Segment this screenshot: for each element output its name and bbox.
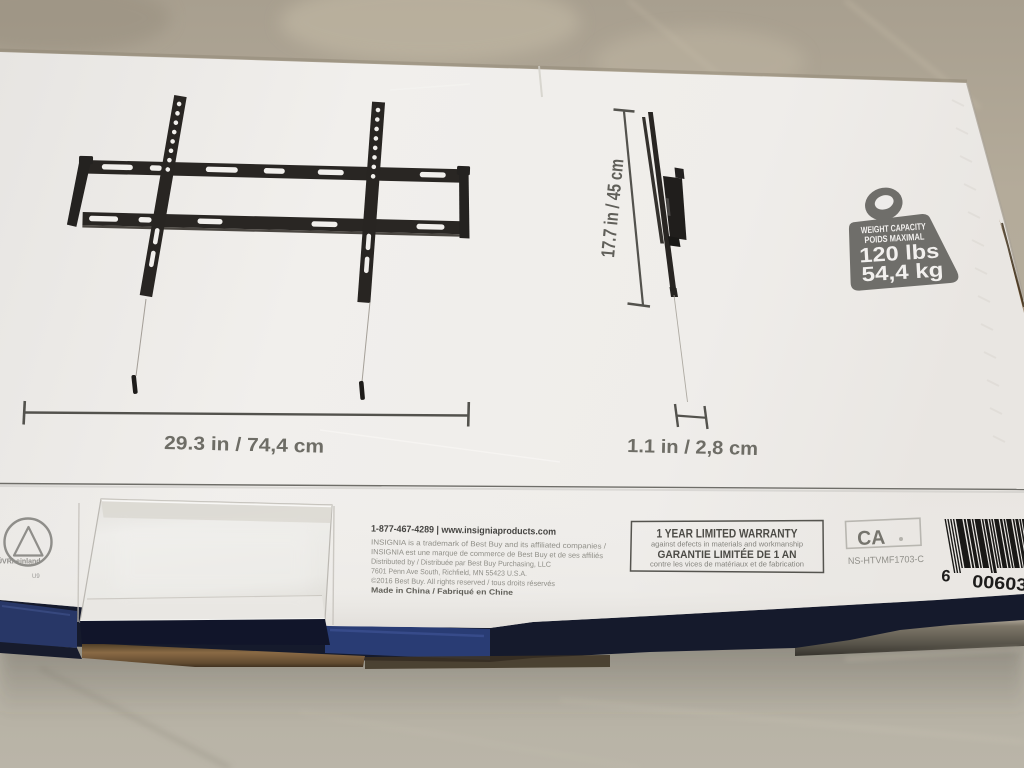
- svg-text:contre les vices de matériaux: contre les vices de matériaux et de fabr…: [650, 561, 804, 569]
- svg-text:00603: 00603: [972, 571, 1024, 595]
- svg-text:1.1 in / 2,8 cm: 1.1 in / 2,8 cm: [627, 436, 758, 460]
- svg-text:6: 6: [941, 567, 951, 586]
- svg-text:CA: CA: [857, 527, 886, 550]
- svg-text:NS-HTVMF1703-C: NS-HTVMF1703-C: [848, 553, 924, 566]
- svg-text:GARANTIE LIMITÉE DE 1 AN: GARANTIE LIMITÉE DE 1 AN: [658, 548, 797, 561]
- svg-text:against defects in materials a: against defects in materials and workman…: [651, 540, 803, 549]
- svg-text:29.3 in / 74,4 cm: 29.3 in / 74,4 cm: [164, 433, 324, 458]
- svg-text:U9: U9: [32, 574, 40, 580]
- svg-text:ÜVRheinland: ÜVRheinland: [0, 557, 41, 566]
